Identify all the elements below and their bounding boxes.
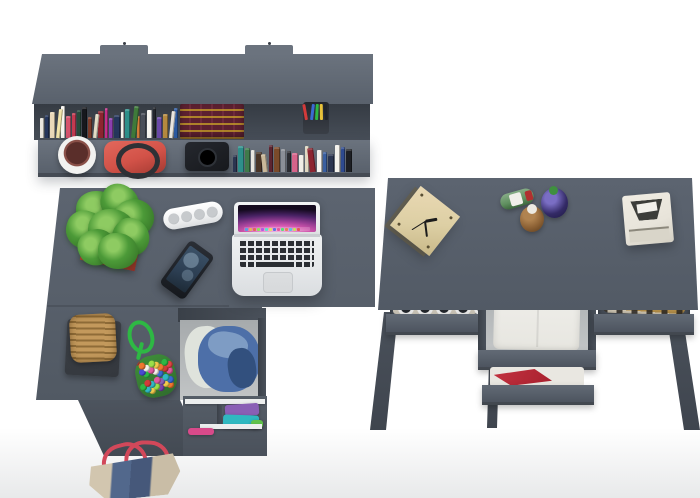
folded-pink-clothes [188,428,214,435]
ledge-book [317,150,322,172]
ledge-book [238,146,244,172]
laptop-screen [234,202,320,234]
laptop-spacebar [258,262,292,267]
ledge-book [292,153,298,172]
wall-shelf-top-panel [32,54,373,104]
furniture-render-scene [0,0,700,498]
clock-hour-hand [425,218,437,223]
book-spine [88,117,92,138]
book-row-ledge [233,144,363,172]
book-spine [141,113,145,138]
ledge-book [328,154,334,172]
bottle-cap-red [524,190,533,202]
ledge-book [261,154,268,172]
ledge-book [281,149,286,172]
red-cloth-drawer-interior [490,367,584,387]
dock-dot [245,228,248,231]
dock-dot [285,228,288,231]
amber-bottle [520,206,544,232]
ledge-book [269,145,273,172]
book-spine [82,107,87,138]
dock-dot [249,228,252,231]
laptop-dock [244,227,310,231]
tee-drawer-front [386,314,484,335]
plaid-drawer-front [594,314,694,335]
pen [310,104,315,120]
blue-bottle [541,188,568,218]
red-handbag [104,141,166,173]
book-spine [109,118,113,138]
laptop-body [232,234,322,296]
handbag-strap [116,143,160,179]
camera-box-tray [629,226,670,242]
book-spine [77,110,81,138]
book-spine [66,116,71,138]
dock-dot [261,228,264,231]
ledge-book [299,155,304,172]
speaker-grill-icon [167,213,180,226]
ledge-book [323,152,327,172]
book-spine [40,118,44,138]
clothes-shelf-unit [183,396,267,456]
bottle-label [509,192,524,207]
laptop-hinge [234,234,320,237]
potted-plant [58,183,154,275]
ledge-book [245,148,250,172]
ledge-book [274,147,280,172]
book-row-top [40,106,178,138]
clock-minute-hand [424,221,428,237]
dock-dot [269,228,272,231]
speaker-grill-icon [206,206,219,219]
bottle-cap-white [527,204,537,214]
dock-dot [273,228,276,231]
laptop-display [238,205,316,232]
speaker-grill-icon [193,208,206,221]
book-spine [50,112,55,138]
camera-lens-icon [198,148,217,167]
bottle-cap-green [549,186,558,195]
ledge-book [346,149,352,172]
dock-dot [253,228,256,231]
laptop-trackpad [263,272,293,293]
book-spine [147,110,152,138]
ledge-book [251,150,255,172]
pen [302,104,308,120]
book-spine [125,109,129,138]
ledge-book [341,147,345,172]
pencil-cup [303,102,329,134]
book-spine [157,117,161,138]
denim-drawer-side-wall [258,318,266,402]
dock-dot [277,228,280,231]
tote-bag [85,439,182,498]
classic-book-set [180,104,244,139]
desk-front-edge [47,305,229,307]
pen [315,104,319,120]
book-spine [153,107,157,138]
black-camera [185,142,229,171]
dock-dot [289,228,292,231]
dock-dot [297,228,300,231]
clock-second-hand [412,221,426,230]
dock-dot [293,228,296,231]
flower-pot [58,136,96,174]
ledge-book [287,151,291,172]
book-spine [72,113,76,138]
book-spine [105,108,109,138]
pen [319,104,322,120]
dock-dot [265,228,268,231]
ledge-book [233,155,237,172]
book-spine [121,112,125,138]
wicker-basket [69,313,117,363]
dock-dot [281,228,284,231]
pen [323,104,327,120]
book-spine [45,115,49,138]
book-spine [163,114,168,138]
instant-camera-box [622,192,674,246]
speaker-grill-icon [180,210,193,223]
dock-dot [257,228,260,231]
ledge-book [335,145,340,172]
book-spine [114,115,119,138]
red-cloth-drawer-front [482,385,594,405]
